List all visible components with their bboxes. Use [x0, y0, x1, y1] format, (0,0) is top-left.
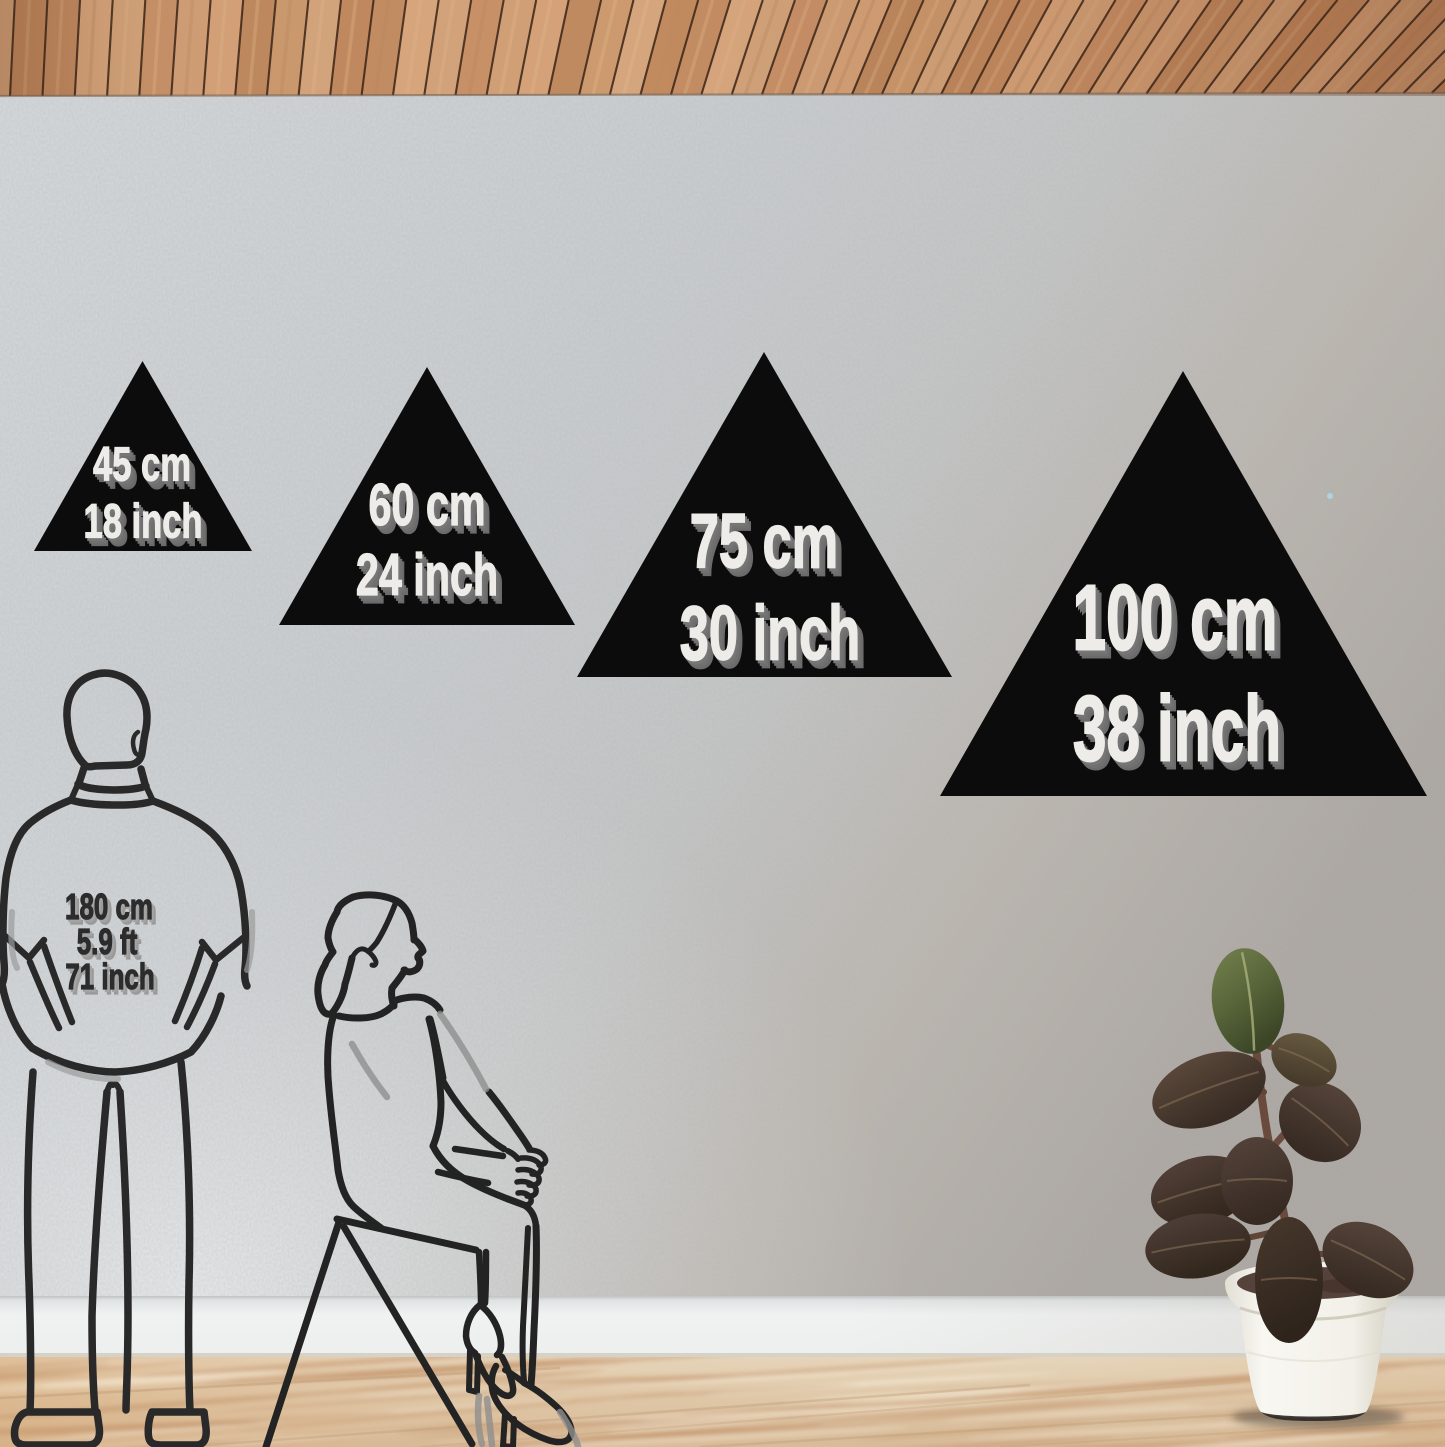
svg-text:38 inch: 38 inch [1073, 676, 1281, 780]
svg-text:24 inch: 24 inch [356, 542, 498, 608]
svg-text:100 cm: 100 cm [1072, 565, 1277, 669]
svg-text:45 cm: 45 cm [93, 437, 191, 491]
svg-text:71 inch: 71 inch [65, 957, 154, 997]
svg-text:18 inch: 18 inch [83, 494, 202, 548]
svg-text:60 cm: 60 cm [368, 472, 485, 538]
svg-text:30 inch: 30 inch [680, 590, 860, 677]
svg-text:75 cm: 75 cm [690, 498, 838, 585]
